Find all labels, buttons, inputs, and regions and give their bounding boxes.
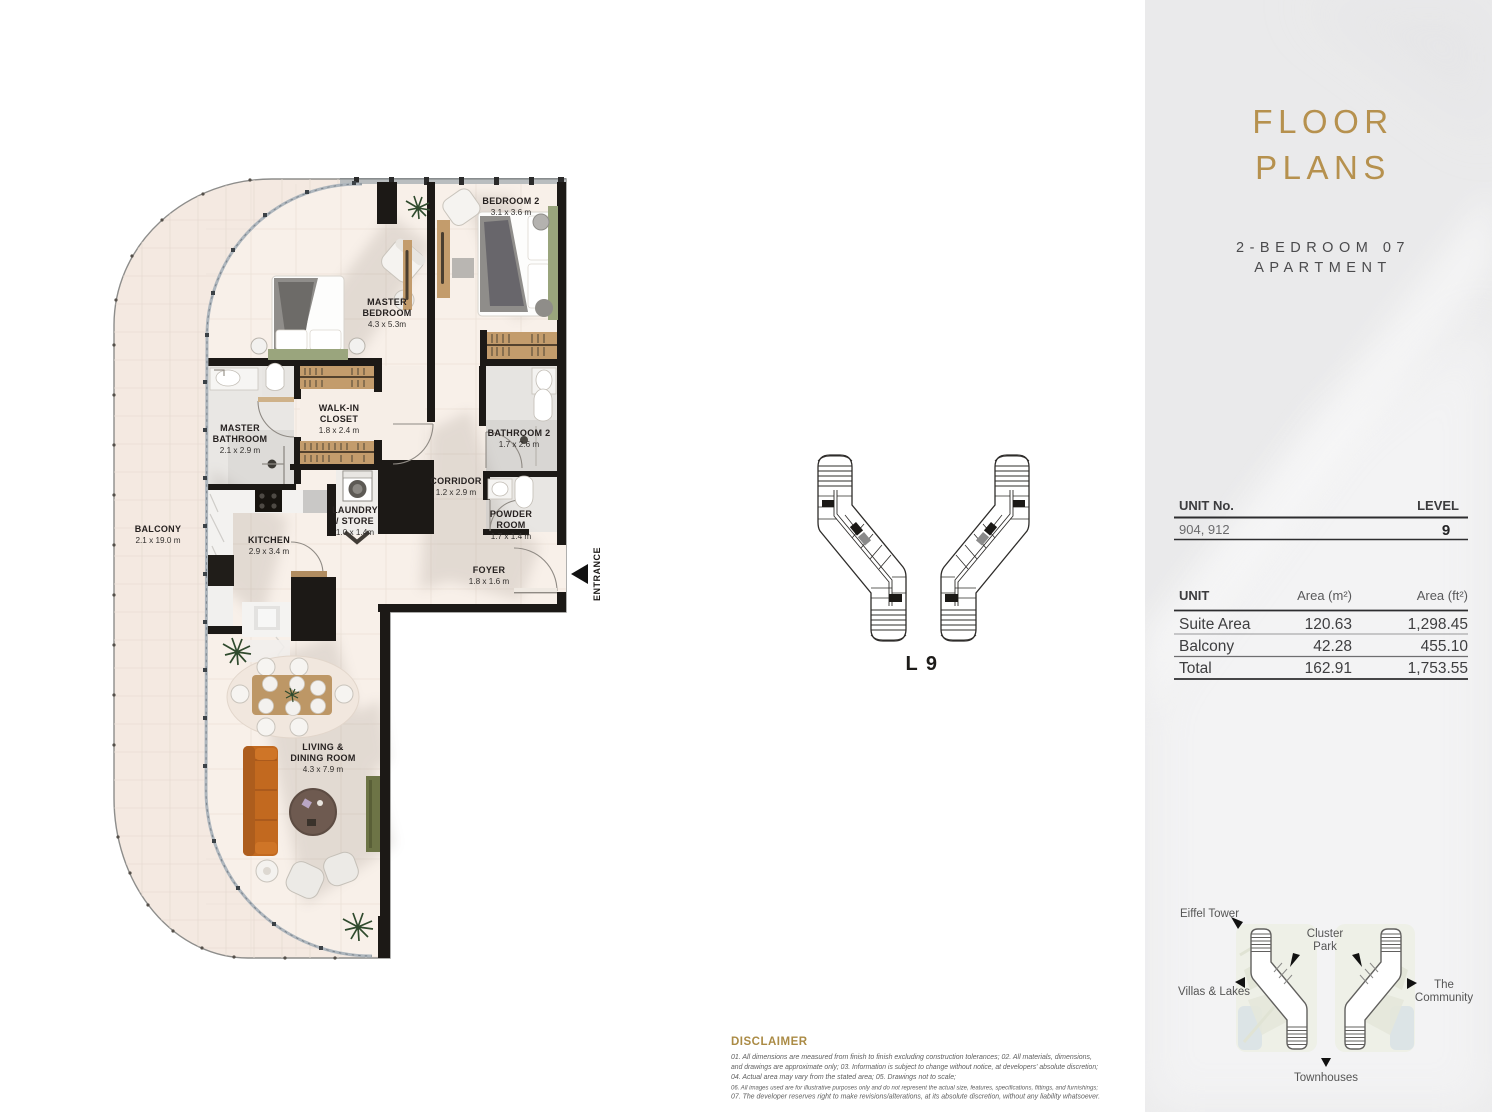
svg-text:Total: Total (1179, 660, 1212, 677)
svg-text:2.1 x 2.9 m: 2.1 x 2.9 m (220, 446, 261, 455)
svg-text:APARTMENT: APARTMENT (1254, 260, 1392, 276)
svg-text:BEDROOM: BEDROOM (362, 308, 411, 318)
svg-text:WALK-IN: WALK-IN (319, 403, 360, 413)
svg-text:162.91: 162.91 (1305, 660, 1352, 677)
svg-text:FOYER: FOYER (473, 565, 506, 575)
svg-text:BEDROOM 2: BEDROOM 2 (482, 196, 539, 206)
svg-text:1,753.55: 1,753.55 (1408, 660, 1468, 677)
svg-text:120.63: 120.63 (1305, 616, 1352, 633)
svg-text:Area (m²): Area (m²) (1297, 588, 1352, 603)
svg-text:BATHROOM 2: BATHROOM 2 (488, 428, 551, 438)
svg-text:DINING ROOM: DINING ROOM (290, 753, 355, 763)
svg-text:2-BEDROOM 07: 2-BEDROOM 07 (1236, 240, 1410, 256)
svg-text:9: 9 (1442, 522, 1450, 539)
svg-text:904, 912: 904, 912 (1179, 522, 1230, 537)
svg-text:1.7 x 1.4 m: 1.7 x 1.4 m (491, 532, 532, 541)
svg-text:LEVEL: LEVEL (1417, 498, 1459, 513)
svg-text:Community: Community (1415, 992, 1473, 1004)
svg-text:455.10: 455.10 (1421, 638, 1469, 655)
svg-text:1.0 x 1.4m: 1.0 x 1.4m (336, 528, 374, 537)
svg-text:Suite Area: Suite Area (1179, 616, 1251, 633)
svg-text:ENTRANCE: ENTRANCE (592, 547, 602, 601)
svg-text:04. Actual area may vary from: 04. Actual area may vary from the stated… (731, 1072, 956, 1081)
svg-text:Eiffel Tower: Eiffel Tower (1180, 908, 1239, 920)
svg-text:Balcony: Balcony (1179, 638, 1234, 655)
svg-text:4.3 x 5.3m: 4.3 x 5.3m (368, 320, 406, 329)
svg-text:PLANS: PLANS (1255, 149, 1391, 186)
svg-text:07. The developer reserves rig: 07. The developer reserves right to make… (731, 1094, 1100, 1101)
svg-text:1.8 x 1.6 m: 1.8 x 1.6 m (469, 577, 510, 586)
svg-text:LAUNDRY: LAUNDRY (332, 505, 378, 515)
svg-text:BALCONY: BALCONY (135, 524, 182, 534)
svg-text:Townhouses: Townhouses (1294, 1072, 1358, 1084)
svg-text:and drawings are approximate o: and drawings are approximate only; 03. I… (731, 1062, 1098, 1071)
svg-text:CORRIDOR: CORRIDOR (430, 476, 482, 486)
svg-text:01. All dimensions are measure: 01. All dimensions are measured from fin… (731, 1052, 1092, 1061)
svg-text:FLOOR: FLOOR (1252, 103, 1393, 140)
svg-text:Cluster: Cluster (1307, 928, 1344, 940)
svg-text:LIVING &: LIVING & (302, 742, 344, 752)
svg-text:BATHROOM: BATHROOM (213, 434, 268, 444)
svg-text:06. All images used are for il: 06. All images used are for illustrative… (731, 1085, 1098, 1092)
svg-text:CLOSET: CLOSET (320, 414, 359, 424)
svg-text:3.1 x 3.6 m: 3.1 x 3.6 m (491, 208, 532, 217)
svg-text:1.8 x 2.4 m: 1.8 x 2.4 m (319, 426, 360, 435)
svg-text:UNIT: UNIT (1179, 588, 1209, 603)
svg-text:1,298.45: 1,298.45 (1408, 616, 1468, 633)
svg-text:Villas & Lakes: Villas & Lakes (1178, 986, 1250, 998)
svg-text:POWDER: POWDER (490, 509, 533, 519)
svg-text:MASTER: MASTER (367, 297, 407, 307)
svg-text:Area (ft²): Area (ft²) (1417, 588, 1468, 603)
svg-text:DISCLAIMER: DISCLAIMER (731, 1036, 808, 1048)
svg-text:UNIT No.: UNIT No. (1179, 498, 1234, 513)
svg-text:Park: Park (1313, 941, 1337, 953)
svg-text:1.7 x 2.6 m: 1.7 x 2.6 m (499, 440, 540, 449)
svg-text:MASTER: MASTER (220, 423, 260, 433)
svg-text:KITCHEN: KITCHEN (248, 535, 290, 545)
svg-text:1.2 x 2.9 m: 1.2 x 2.9 m (436, 488, 477, 497)
svg-text:ROOM: ROOM (496, 520, 525, 530)
svg-text:L 9: L 9 (905, 653, 938, 675)
svg-text:42.28: 42.28 (1313, 638, 1352, 655)
svg-text:2.9 x 3.4 m: 2.9 x 3.4 m (249, 547, 290, 556)
svg-text:2.1 x 19.0 m: 2.1 x 19.0 m (135, 536, 180, 545)
svg-text:4.3 x 7.9 m: 4.3 x 7.9 m (303, 765, 344, 774)
svg-text:The: The (1434, 979, 1454, 991)
svg-text:/ STORE: / STORE (336, 516, 374, 526)
